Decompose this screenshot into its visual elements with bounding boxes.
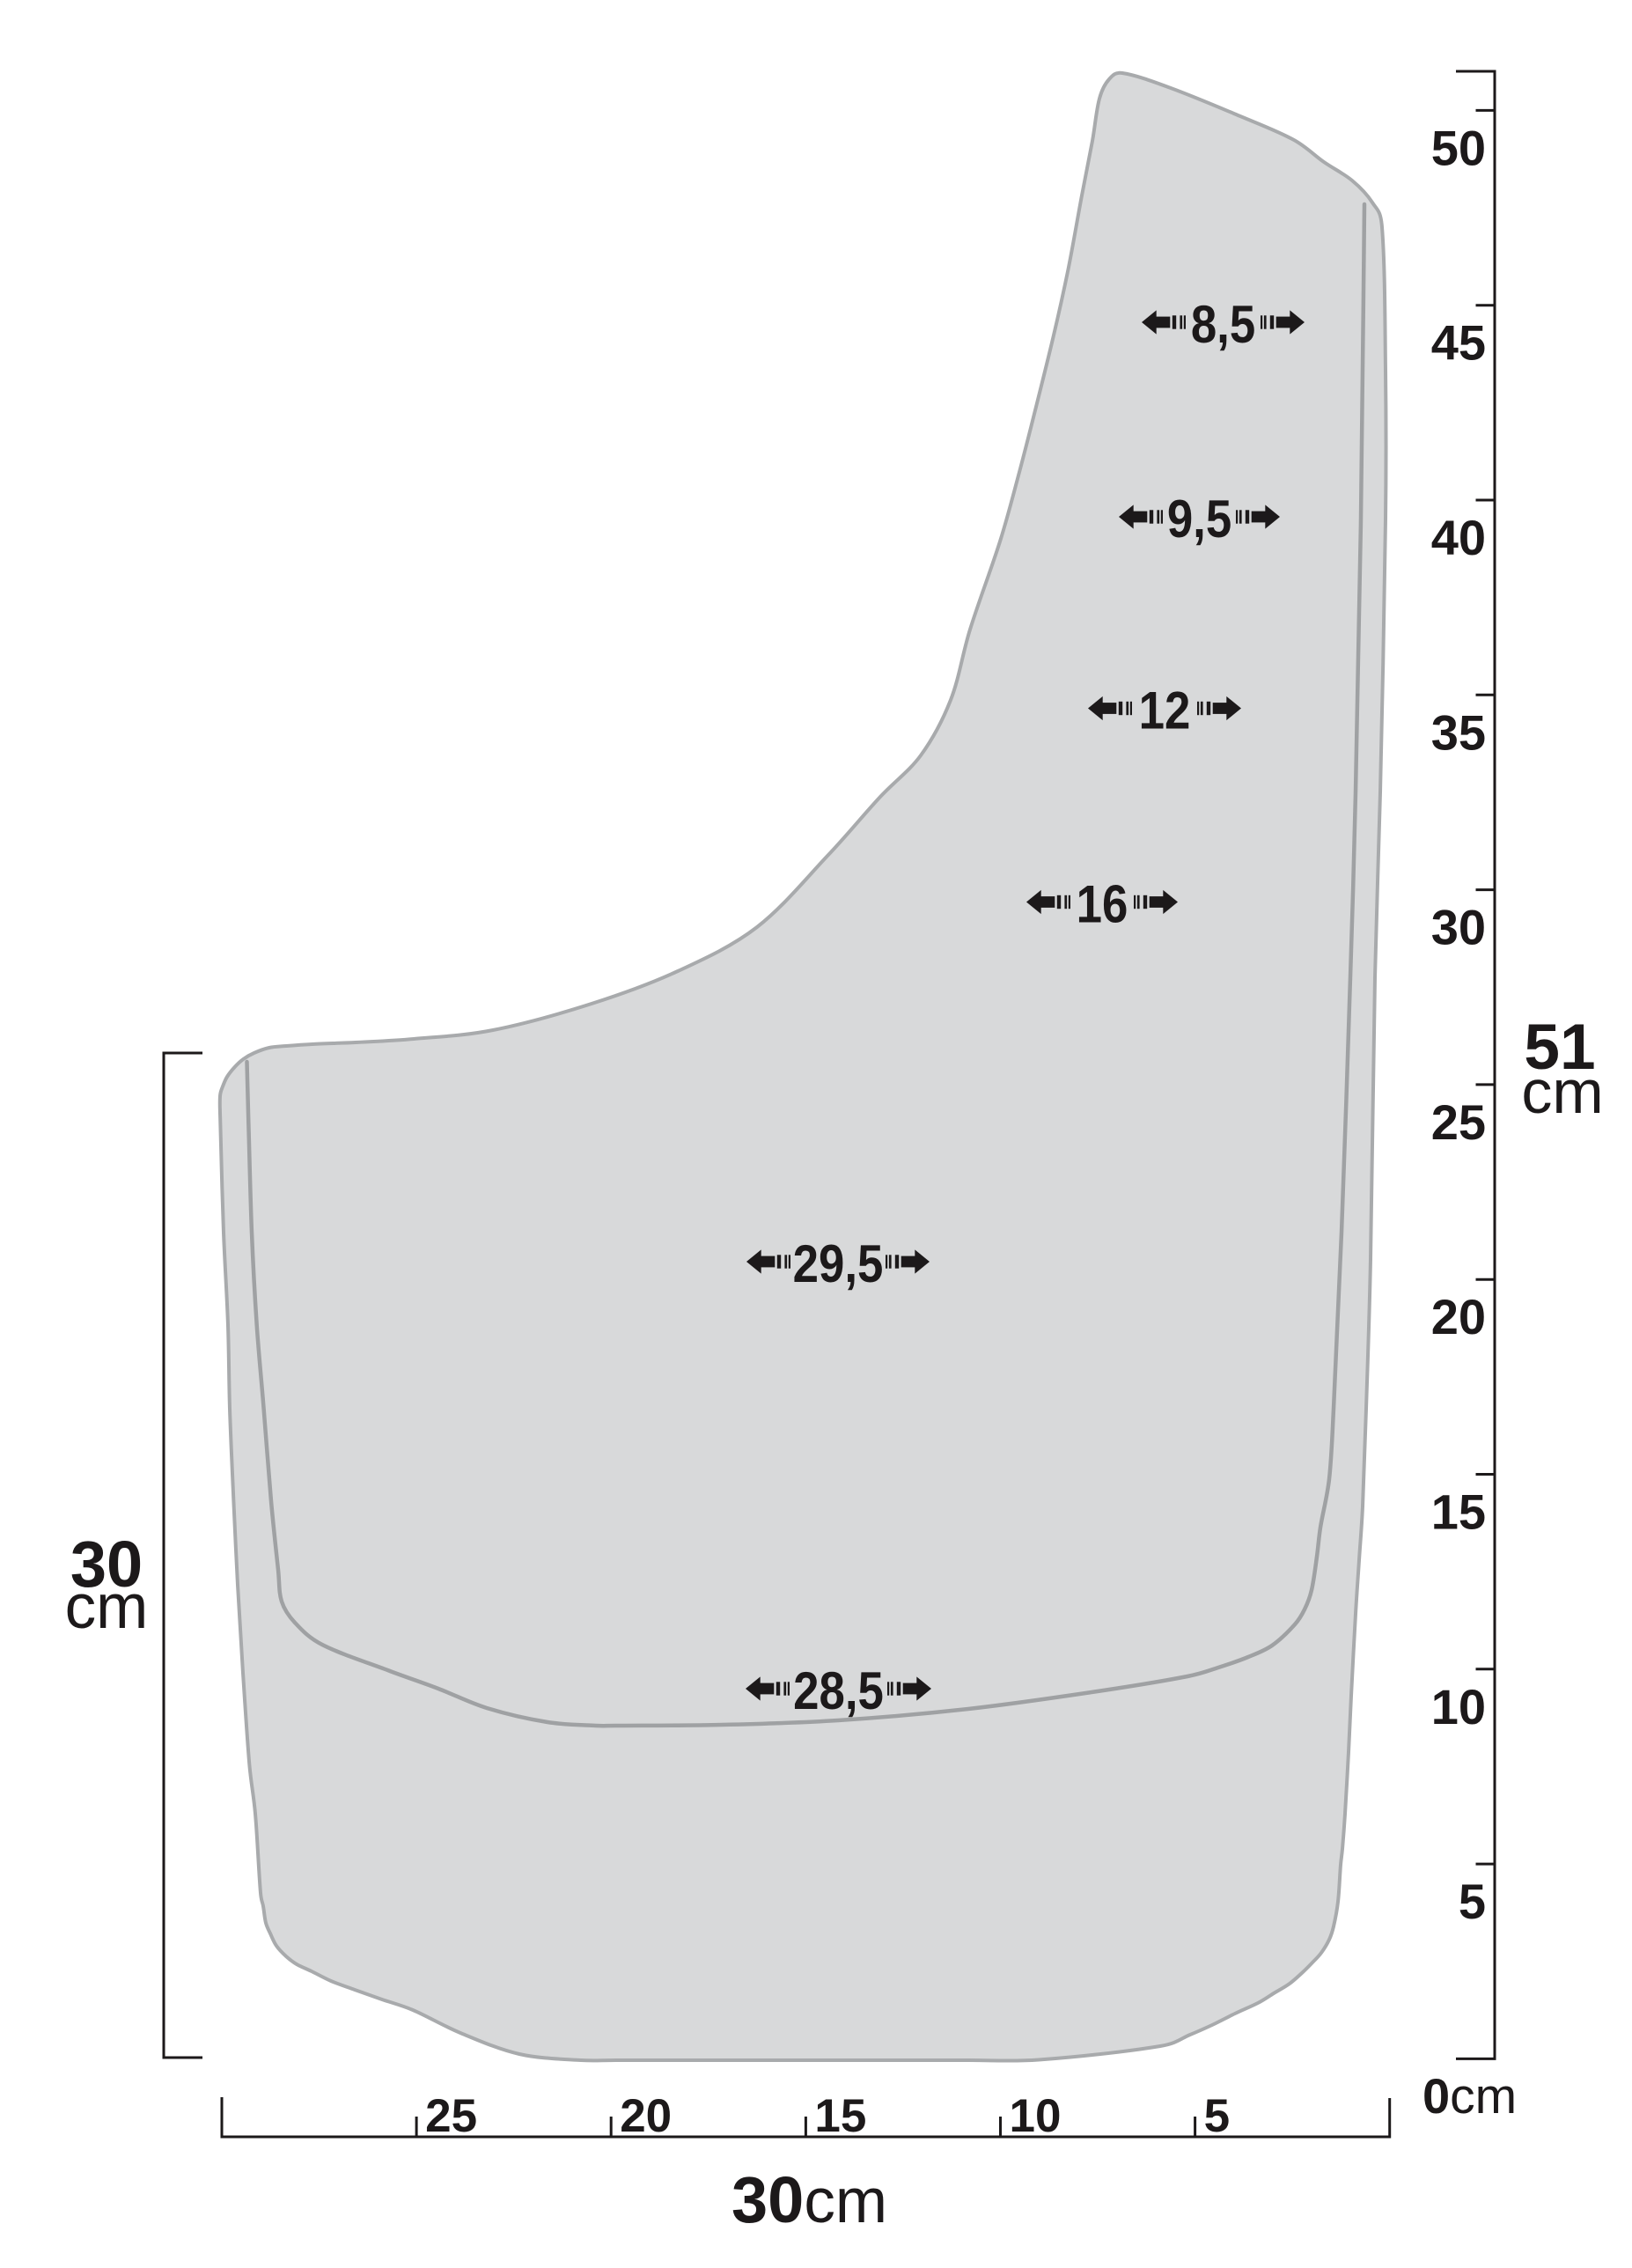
svg-text:5: 5 <box>1459 1874 1486 1929</box>
svg-text:10: 10 <box>1010 2090 1062 2142</box>
svg-text:20: 20 <box>620 2090 672 2142</box>
svg-text:9,5: 9,5 <box>1167 490 1231 549</box>
svg-text:25: 25 <box>425 2090 477 2142</box>
svg-text:0cm: 0cm <box>1422 2068 1517 2124</box>
svg-text:30cm: 30cm <box>731 2163 887 2236</box>
svg-text:28,5: 28,5 <box>793 1661 884 1720</box>
svg-text:cm: cm <box>65 1572 149 1642</box>
svg-text:cm: cm <box>1521 1057 1603 1126</box>
svg-text:29,5: 29,5 <box>793 1234 884 1293</box>
svg-text:20: 20 <box>1431 1289 1486 1344</box>
svg-text:45: 45 <box>1431 315 1486 371</box>
svg-text:15: 15 <box>1431 1484 1486 1540</box>
svg-text:16: 16 <box>1077 875 1128 934</box>
svg-text:8,5: 8,5 <box>1191 295 1255 354</box>
svg-text:50: 50 <box>1431 120 1486 175</box>
svg-text:30: 30 <box>1431 900 1486 955</box>
svg-text:40: 40 <box>1431 510 1486 565</box>
svg-text:25: 25 <box>1431 1094 1486 1150</box>
svg-text:10: 10 <box>1431 1679 1486 1734</box>
svg-text:12: 12 <box>1139 681 1191 740</box>
svg-text:35: 35 <box>1431 704 1486 760</box>
svg-text:5: 5 <box>1204 2090 1230 2142</box>
svg-text:15: 15 <box>814 2090 866 2142</box>
